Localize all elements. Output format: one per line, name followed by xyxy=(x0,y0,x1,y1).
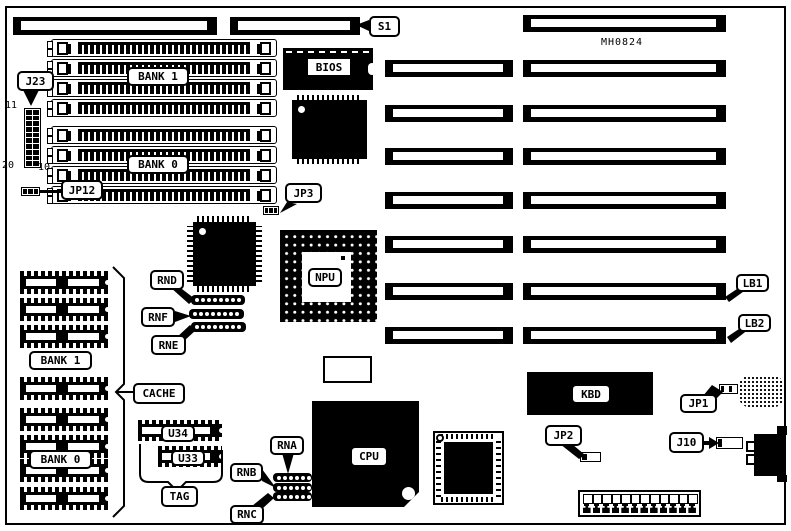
simm-latch-left xyxy=(57,129,73,142)
kbd-label: KBD xyxy=(571,384,611,404)
j23-pin xyxy=(26,150,32,155)
power-pin xyxy=(640,494,648,513)
isa-slot-short xyxy=(385,148,513,165)
simm-latch-right xyxy=(255,149,271,162)
din-tab-1 xyxy=(746,441,756,452)
dip-notch xyxy=(105,307,110,312)
cpu-label: CPU xyxy=(350,446,388,467)
simm-socket xyxy=(51,99,277,117)
simm-latch-left xyxy=(57,82,73,95)
simm-pins xyxy=(78,129,250,141)
rna-label: RNA xyxy=(270,436,304,455)
simm-latch-left xyxy=(57,102,73,115)
rn-pin xyxy=(237,325,241,329)
rne-label: RNE xyxy=(151,335,186,355)
power-pin xyxy=(593,494,601,513)
bios-label: BIOS xyxy=(306,57,352,77)
rn-pin xyxy=(277,495,281,499)
j23-pin xyxy=(33,133,39,138)
simm-latch-right xyxy=(255,102,271,115)
j23-pin xyxy=(26,144,32,149)
isa-slot-long xyxy=(523,192,726,209)
simm-latch-right xyxy=(255,62,271,75)
rn-pin xyxy=(289,486,293,490)
dip-notch xyxy=(105,496,110,501)
j23-pin11-number: 11 xyxy=(5,100,17,111)
cache-dip-row xyxy=(20,271,108,294)
chipset-qfp-2 xyxy=(193,222,256,286)
din-connector-step-top xyxy=(777,426,787,435)
rn-pin xyxy=(219,325,223,329)
cache-dip-row xyxy=(20,408,108,431)
npu-pin1-dot xyxy=(341,256,345,260)
simm-pins xyxy=(78,102,250,114)
jp3-label: JP3 xyxy=(285,183,322,203)
qfp1-pins-bottom xyxy=(297,158,362,164)
j23-pin xyxy=(26,110,32,115)
power-pin-mid xyxy=(603,504,608,506)
simm-pins xyxy=(78,189,250,201)
rn-pin xyxy=(277,486,281,490)
rn-pin xyxy=(225,325,229,329)
isa-slot-long xyxy=(523,148,726,165)
rn-pin xyxy=(229,312,233,316)
u33-label: U33 xyxy=(171,450,205,466)
bios-socket-dashes xyxy=(286,51,370,53)
dip-pins-bottom xyxy=(20,395,108,400)
rn-pin xyxy=(235,312,239,316)
j23-pin xyxy=(33,150,39,155)
power-pin xyxy=(679,494,687,513)
power-pin-mid xyxy=(613,504,618,506)
power-pin xyxy=(650,494,658,513)
isa-slot-short xyxy=(385,192,513,209)
bank1-simm-label: BANK 1 xyxy=(127,67,189,86)
simm-latch-left xyxy=(57,42,73,55)
j23-pin xyxy=(33,144,39,149)
j23-pin xyxy=(26,133,32,138)
isa-slot-short xyxy=(385,327,513,344)
cache-dip-row xyxy=(20,298,108,321)
j23-pin xyxy=(26,127,32,132)
isa-slot-long xyxy=(523,60,726,77)
j23-pin xyxy=(33,127,39,132)
rnc-network xyxy=(273,492,312,501)
qfp1-pin1-dot xyxy=(298,106,305,113)
rn-pin xyxy=(213,325,217,329)
power-pin xyxy=(631,494,639,513)
board-code: MH0824 xyxy=(598,37,646,48)
din-tab-2 xyxy=(746,454,756,465)
power-pin xyxy=(669,494,677,513)
bios-notch xyxy=(368,63,376,75)
dip-notch xyxy=(105,280,110,285)
j23-label: J23 xyxy=(17,71,54,91)
rn-pin xyxy=(301,495,305,499)
rn-pin xyxy=(207,325,211,329)
jp1-label: JP1 xyxy=(680,394,717,413)
plcc-pins-bottom xyxy=(441,497,496,502)
isa-slot-long xyxy=(523,236,726,253)
power-pin-mid xyxy=(594,504,599,506)
power-pin-mid xyxy=(584,504,589,506)
rna-network xyxy=(273,473,312,482)
simm-latch-right xyxy=(255,129,271,142)
j23-pin xyxy=(26,161,32,166)
rn-pin xyxy=(307,486,311,490)
dip-pins-bottom xyxy=(20,426,108,431)
power-connector xyxy=(578,490,701,517)
qfp2-pins-right xyxy=(256,226,262,282)
power-pin-mid xyxy=(680,504,685,506)
rn-pin xyxy=(201,325,205,329)
j23-pin xyxy=(26,121,32,126)
rn-pin xyxy=(195,298,199,302)
plcc-pins-right xyxy=(496,439,501,497)
jp1-jumper xyxy=(719,384,738,394)
power-pin-mid xyxy=(622,504,627,506)
jp3-jumper xyxy=(263,206,279,215)
cache-dip-row xyxy=(20,487,108,510)
dip-pins-bottom xyxy=(20,477,108,482)
jp12-label: JP12 xyxy=(61,180,103,200)
rn-pin xyxy=(217,312,221,316)
chipset-qfp-1 xyxy=(292,100,367,159)
isa-slot-short xyxy=(385,105,513,122)
rn-pin xyxy=(207,298,211,302)
rn-pin xyxy=(213,298,217,302)
power-pin-mid xyxy=(661,504,666,506)
qfp2-pins-top xyxy=(197,216,252,222)
power-pin xyxy=(612,494,620,513)
bank1-cache-label: BANK 1 xyxy=(29,351,92,370)
plcc-pins-top xyxy=(441,434,496,439)
rn-pin xyxy=(301,476,305,480)
power-pin-mid xyxy=(632,504,637,506)
dip-body xyxy=(20,303,108,316)
rn-pin xyxy=(219,298,223,302)
simm-latch-left xyxy=(57,149,73,162)
rn-pin xyxy=(295,486,299,490)
dip-body xyxy=(20,413,108,426)
rn-pin xyxy=(307,495,311,499)
plcc-socket xyxy=(433,431,504,505)
u33-notch xyxy=(219,454,224,459)
u34-notch xyxy=(219,428,224,433)
dip-notch xyxy=(105,468,110,473)
rn-pin xyxy=(193,312,197,316)
power-pin-mid xyxy=(651,504,656,506)
dip-pins-bottom xyxy=(20,505,108,510)
isa-slot-long xyxy=(523,283,726,300)
j23-pin xyxy=(33,121,39,126)
isa-slot-short xyxy=(385,283,513,300)
rn-pin xyxy=(295,495,299,499)
simm-latch-right xyxy=(255,82,271,95)
dip-body xyxy=(20,276,108,289)
simm-pins xyxy=(78,42,250,54)
power-pin xyxy=(583,494,591,513)
j23-pin-header xyxy=(24,108,41,168)
qfp2-pin1-dot xyxy=(199,228,206,235)
dip-notch xyxy=(105,417,110,422)
j23-pin xyxy=(26,116,32,121)
rn-pin xyxy=(283,495,287,499)
din-connector-step-bottom xyxy=(777,475,787,482)
cache-dip-row xyxy=(20,325,108,348)
power-pin-mid xyxy=(670,504,675,506)
power-pin xyxy=(660,494,668,513)
jp12-jumper xyxy=(21,187,40,196)
j10-label: J10 xyxy=(669,432,704,453)
rnb-label: RNB xyxy=(230,463,263,482)
rn-pin xyxy=(283,476,287,480)
rn-pin xyxy=(205,312,209,316)
stipple-component xyxy=(739,376,784,407)
power-pin xyxy=(602,494,610,513)
j23-pin xyxy=(33,138,39,143)
rn-pin xyxy=(283,486,287,490)
rn-pin xyxy=(211,312,215,316)
dip-notch xyxy=(105,444,110,449)
j23-pin xyxy=(26,156,32,161)
rnb-network xyxy=(273,483,312,492)
bank0-simm-label: BANK 0 xyxy=(127,155,189,174)
rn-pin xyxy=(231,325,235,329)
plcc-pin1-dot xyxy=(436,434,444,442)
power-pin xyxy=(621,494,629,513)
lb1-label: LB1 xyxy=(736,274,769,292)
dip-body xyxy=(20,382,108,395)
power-pin xyxy=(688,494,696,513)
power-pin-mid xyxy=(642,504,647,506)
npu-label: NPU xyxy=(308,268,342,287)
rn-pin xyxy=(237,298,241,302)
j23-pin20-number: 20 xyxy=(2,160,14,171)
j23-pin xyxy=(33,110,39,115)
jp2-label: JP2 xyxy=(545,425,582,446)
simm-socket xyxy=(51,39,277,57)
j23-pin10-number: 10 xyxy=(38,162,50,173)
j23-pin xyxy=(26,138,32,143)
dip-pins-bottom xyxy=(20,343,108,348)
rn-pin xyxy=(201,298,205,302)
plcc-inner xyxy=(444,442,493,494)
jp2-jumper xyxy=(580,452,601,462)
j23-pin xyxy=(33,156,39,161)
rnc-label: RNC xyxy=(230,505,264,524)
j23-pin xyxy=(33,116,39,121)
qfp2-pins-left xyxy=(187,226,193,282)
rne-network xyxy=(191,322,246,332)
rnd-label: RND xyxy=(150,270,184,290)
qfp1-pins-top xyxy=(297,95,362,101)
simm-latch-right xyxy=(255,42,271,55)
rn-pin xyxy=(289,476,293,480)
dip-notch xyxy=(105,386,110,391)
u34-label: U34 xyxy=(161,425,195,442)
simm-latch-left xyxy=(57,62,73,75)
din-connector-body xyxy=(754,434,785,476)
rn-pin xyxy=(289,495,293,499)
plcc-pins-left xyxy=(436,439,441,497)
isa-slot-long xyxy=(523,15,726,32)
bank0-cache-label: BANK 0 xyxy=(29,450,92,469)
cache-dip-row xyxy=(20,377,108,400)
cache-label: CACHE xyxy=(133,383,185,404)
rn-pin xyxy=(195,325,199,329)
simm-socket xyxy=(51,126,277,144)
simm-latch-right xyxy=(255,169,271,182)
j10-connector xyxy=(716,437,743,449)
dip-pins-bottom xyxy=(20,316,108,321)
rnf-network xyxy=(189,309,244,319)
rn-pin xyxy=(307,476,311,480)
rnd-network xyxy=(191,295,245,305)
rn-pin xyxy=(225,298,229,302)
rn-pin xyxy=(231,298,235,302)
simm-latch-right xyxy=(255,189,271,202)
dip-body xyxy=(20,330,108,343)
isa-slot-long xyxy=(523,105,726,122)
rn-pin xyxy=(295,476,299,480)
dip-pins-bottom xyxy=(20,289,108,294)
rn-pin xyxy=(301,486,305,490)
s1-label: S1 xyxy=(369,16,400,37)
isa-slot-short xyxy=(385,236,513,253)
dip-body xyxy=(20,492,108,505)
tag-label: TAG xyxy=(161,486,198,507)
rn-pin xyxy=(223,312,227,316)
dip-notch xyxy=(105,334,110,339)
crystal-outline xyxy=(323,356,372,383)
rn-pin xyxy=(277,476,281,480)
power-pin-mid xyxy=(689,504,694,506)
lb2-label: LB2 xyxy=(738,314,771,332)
rnf-label: RNF xyxy=(141,307,175,327)
rn-pin xyxy=(199,312,203,316)
isa-slot-long xyxy=(523,327,726,344)
motherboard-diagram: MH0824 11 20 10 xyxy=(0,0,791,531)
isa-slot-short xyxy=(385,60,513,77)
qfp2-pins-bottom xyxy=(197,286,252,292)
